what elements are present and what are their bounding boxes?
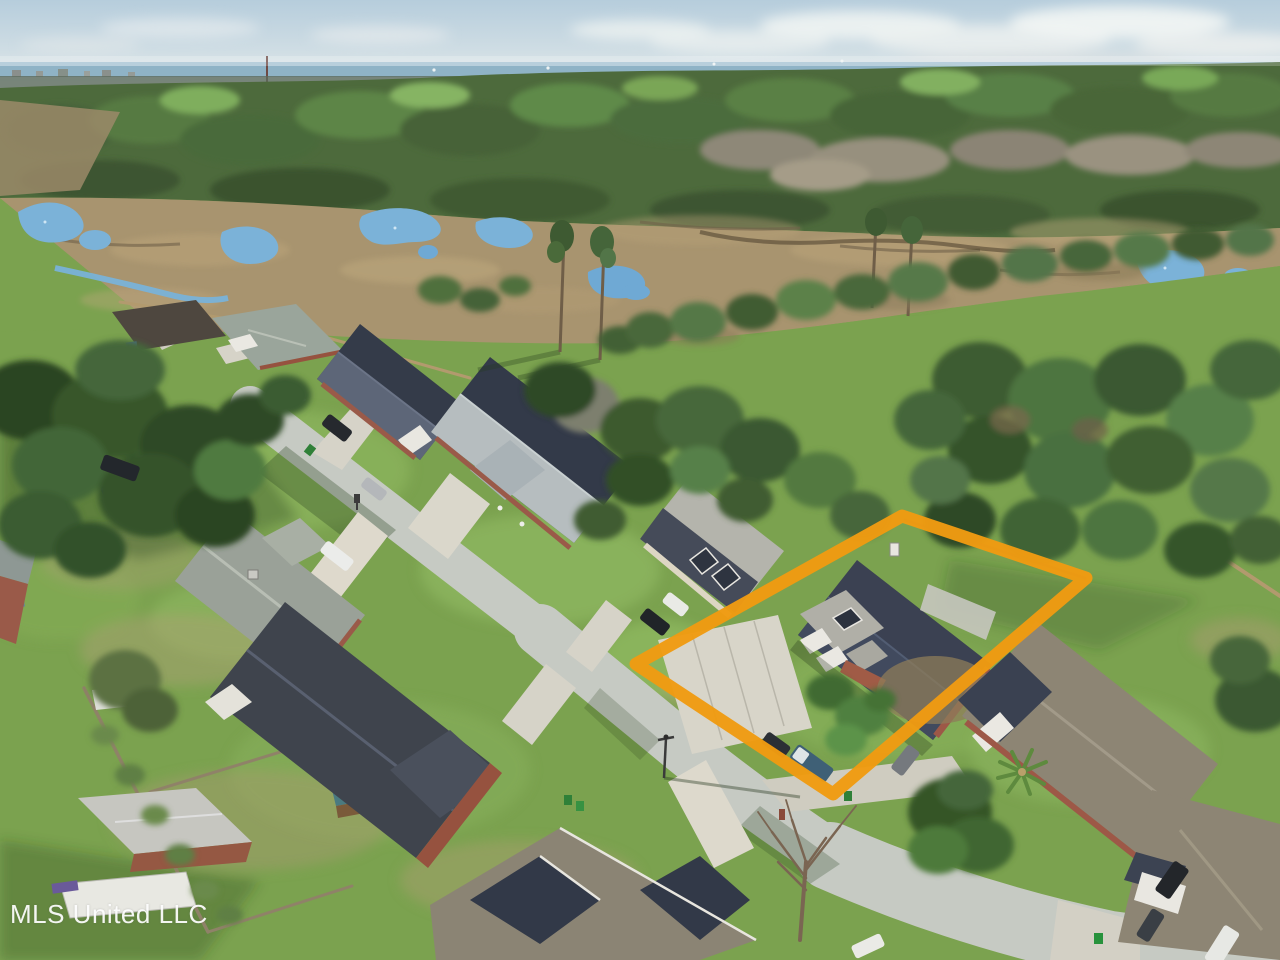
aerial-photo: MLS United LLC — [0, 0, 1280, 960]
watermark-text: MLS United LLC — [10, 899, 208, 930]
trees-right-cluster — [894, 340, 1280, 578]
aerial-photo-canvas — [0, 0, 1280, 960]
